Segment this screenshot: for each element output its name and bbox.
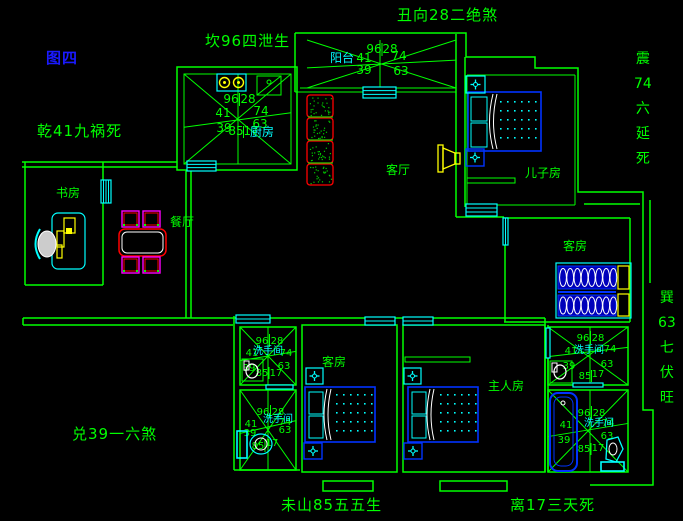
- study-chair: [36, 229, 57, 259]
- room-label-dining: 餐厅: [170, 216, 194, 228]
- star-number-r: 74: [253, 104, 268, 118]
- annotation-left: 乾41九祸死: [37, 124, 122, 139]
- room-label-guest-right: 客房: [563, 240, 587, 252]
- washroom-d-toilet: [601, 437, 624, 471]
- study-door: [101, 180, 111, 203]
- star-number-l: 41: [215, 106, 230, 120]
- son-room-shelf: [467, 178, 515, 183]
- room-label-living: 客厅: [386, 164, 410, 176]
- master-nightstand-bottom: [404, 443, 422, 459]
- annotation-bottom-right: 离17三天死: [510, 498, 595, 513]
- son-room-bed: [468, 92, 541, 151]
- star-number-bl: 39: [558, 435, 571, 446]
- room-label-kitchen: 厨房: [250, 126, 274, 138]
- star-number-b1: 85: [228, 124, 243, 138]
- star-number-br: 63: [393, 64, 408, 78]
- star-number-b2: 17: [592, 443, 605, 454]
- star-number-tl: 96: [223, 92, 238, 106]
- cad-floorplan-canvas[interactable]: 9628417439638517 962841743963 9628417439…: [0, 0, 683, 521]
- star-washroom-c: 9628417439638517: [548, 327, 628, 385]
- washroom-d-bathtub: [550, 393, 577, 471]
- annotation-right-upper: 震 74 六 延 死: [634, 52, 652, 166]
- guest-mid-bed: [305, 387, 375, 442]
- dining-table: [119, 229, 166, 256]
- kitchen-window: [187, 161, 216, 171]
- star-number-l: 41: [560, 420, 573, 431]
- room-label-balcony: 阳台: [330, 52, 354, 64]
- master-nightstand-top: [404, 368, 421, 384]
- plant-row: [307, 95, 333, 185]
- annotation-bottom-center: 未山85五五生: [281, 498, 382, 513]
- star-number-r: 74: [391, 49, 406, 63]
- annotation-bottom-left: 兑39一六煞: [72, 427, 157, 442]
- star-number-bl: 39: [356, 63, 371, 77]
- star-number-b1: 85: [252, 441, 265, 452]
- stove: [217, 74, 246, 91]
- washroom-ab-divider: [266, 385, 293, 389]
- star-number-b1: 85: [579, 371, 592, 382]
- master-bed: [408, 387, 478, 442]
- annotation-right-lower: 巽 63 七 伏 旺: [658, 291, 676, 405]
- master-room-shelf: [405, 357, 470, 362]
- guest-mid-nightstand-top: [306, 368, 323, 384]
- star-washroom-b: 9628417439638517: [240, 390, 296, 470]
- balcony-window: [363, 87, 396, 98]
- dining-chairs: [122, 211, 160, 273]
- annotation-top-left: 坎96四泄生: [205, 34, 290, 49]
- room-label-washroom-b: 洗手间: [263, 415, 293, 425]
- guest-room-right-door: [503, 218, 508, 245]
- star-washroom-d: 9628417439638517: [548, 390, 628, 472]
- twin-beds: [556, 263, 631, 318]
- star-number-tl: 96: [577, 333, 590, 344]
- figure-label: 图四: [46, 51, 78, 66]
- room-label-son-room: 儿子房: [525, 167, 561, 179]
- star-number-b1: 85: [578, 444, 591, 455]
- annotation-top: 丑向28二绝煞: [397, 8, 498, 23]
- star-number-tr: 28: [592, 333, 605, 344]
- star-number-br: 63: [279, 425, 292, 436]
- room-label-washroom-c: 洗手间: [574, 346, 604, 356]
- room-label-guest-mid: 客房: [322, 356, 346, 368]
- star-number-r: 74: [604, 344, 617, 355]
- corridor-window-2: [365, 317, 395, 325]
- room-label-washroom-d: 洗手间: [584, 419, 614, 429]
- guest-mid-nightstand-bottom: [304, 443, 322, 459]
- washroom-cd-divider: [573, 383, 603, 387]
- star-number-bl: 39: [244, 428, 257, 439]
- room-label-master: 主人房: [488, 380, 524, 392]
- room-label-study: 书房: [56, 187, 80, 199]
- son-room-window: [466, 204, 497, 216]
- star-number-b2: 17: [592, 369, 605, 380]
- washroom-c-door: [546, 328, 550, 358]
- corridor-window-1: [236, 315, 270, 323]
- room-label-washroom-a: 洗手间: [253, 347, 283, 357]
- star-number-b2: 17: [270, 368, 283, 379]
- corridor-window-3: [403, 317, 433, 325]
- son-nightstand-top: [466, 76, 485, 93]
- study-desk: [52, 213, 85, 269]
